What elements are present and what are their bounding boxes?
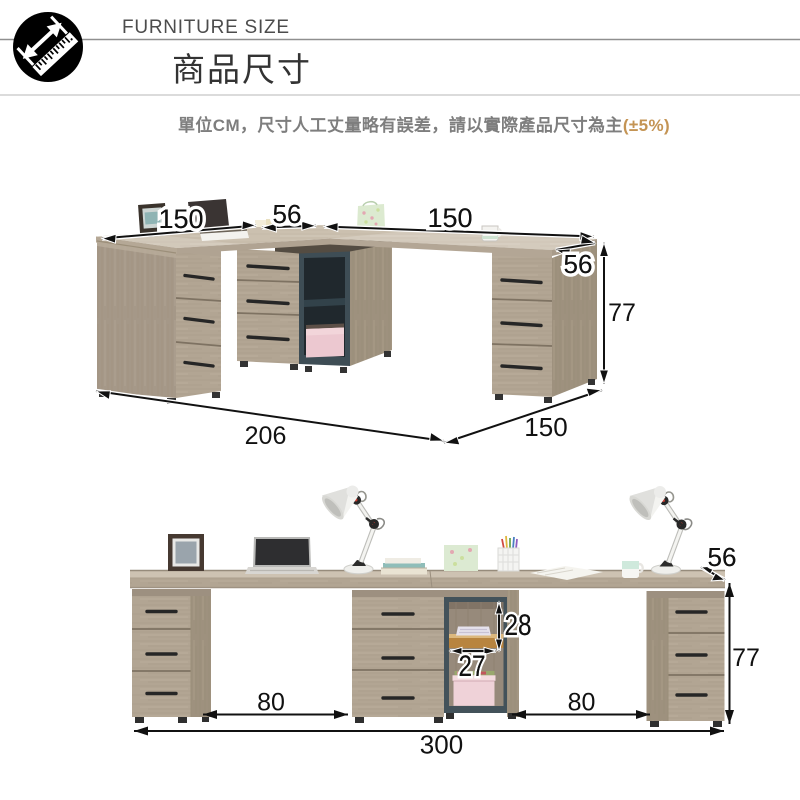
svg-text:FURNITURE SIZE: FURNITURE SIZE [122,17,290,38]
svg-text:56: 56 [708,542,737,572]
svg-text:150: 150 [427,203,472,233]
svg-text:77: 77 [732,644,760,672]
svg-text:28: 28 [505,609,532,642]
svg-text:77: 77 [608,299,636,327]
svg-text:商品尺寸: 商品尺寸 [172,51,312,88]
svg-text:80: 80 [568,689,596,717]
svg-text:150: 150 [158,204,203,234]
svg-text:206: 206 [245,422,287,450]
svg-text:80: 80 [257,689,285,717]
svg-text:56: 56 [564,249,593,279]
svg-text:單位CM，尺寸人工丈量略有誤差，請以實際產品尺寸為主(±5%: 單位CM，尺寸人工丈量略有誤差，請以實際產品尺寸為主(±5%) [178,115,670,135]
svg-text:150: 150 [524,412,567,442]
svg-text:56: 56 [273,199,302,229]
svg-text:300: 300 [420,730,463,760]
svg-text:27: 27 [459,650,486,683]
